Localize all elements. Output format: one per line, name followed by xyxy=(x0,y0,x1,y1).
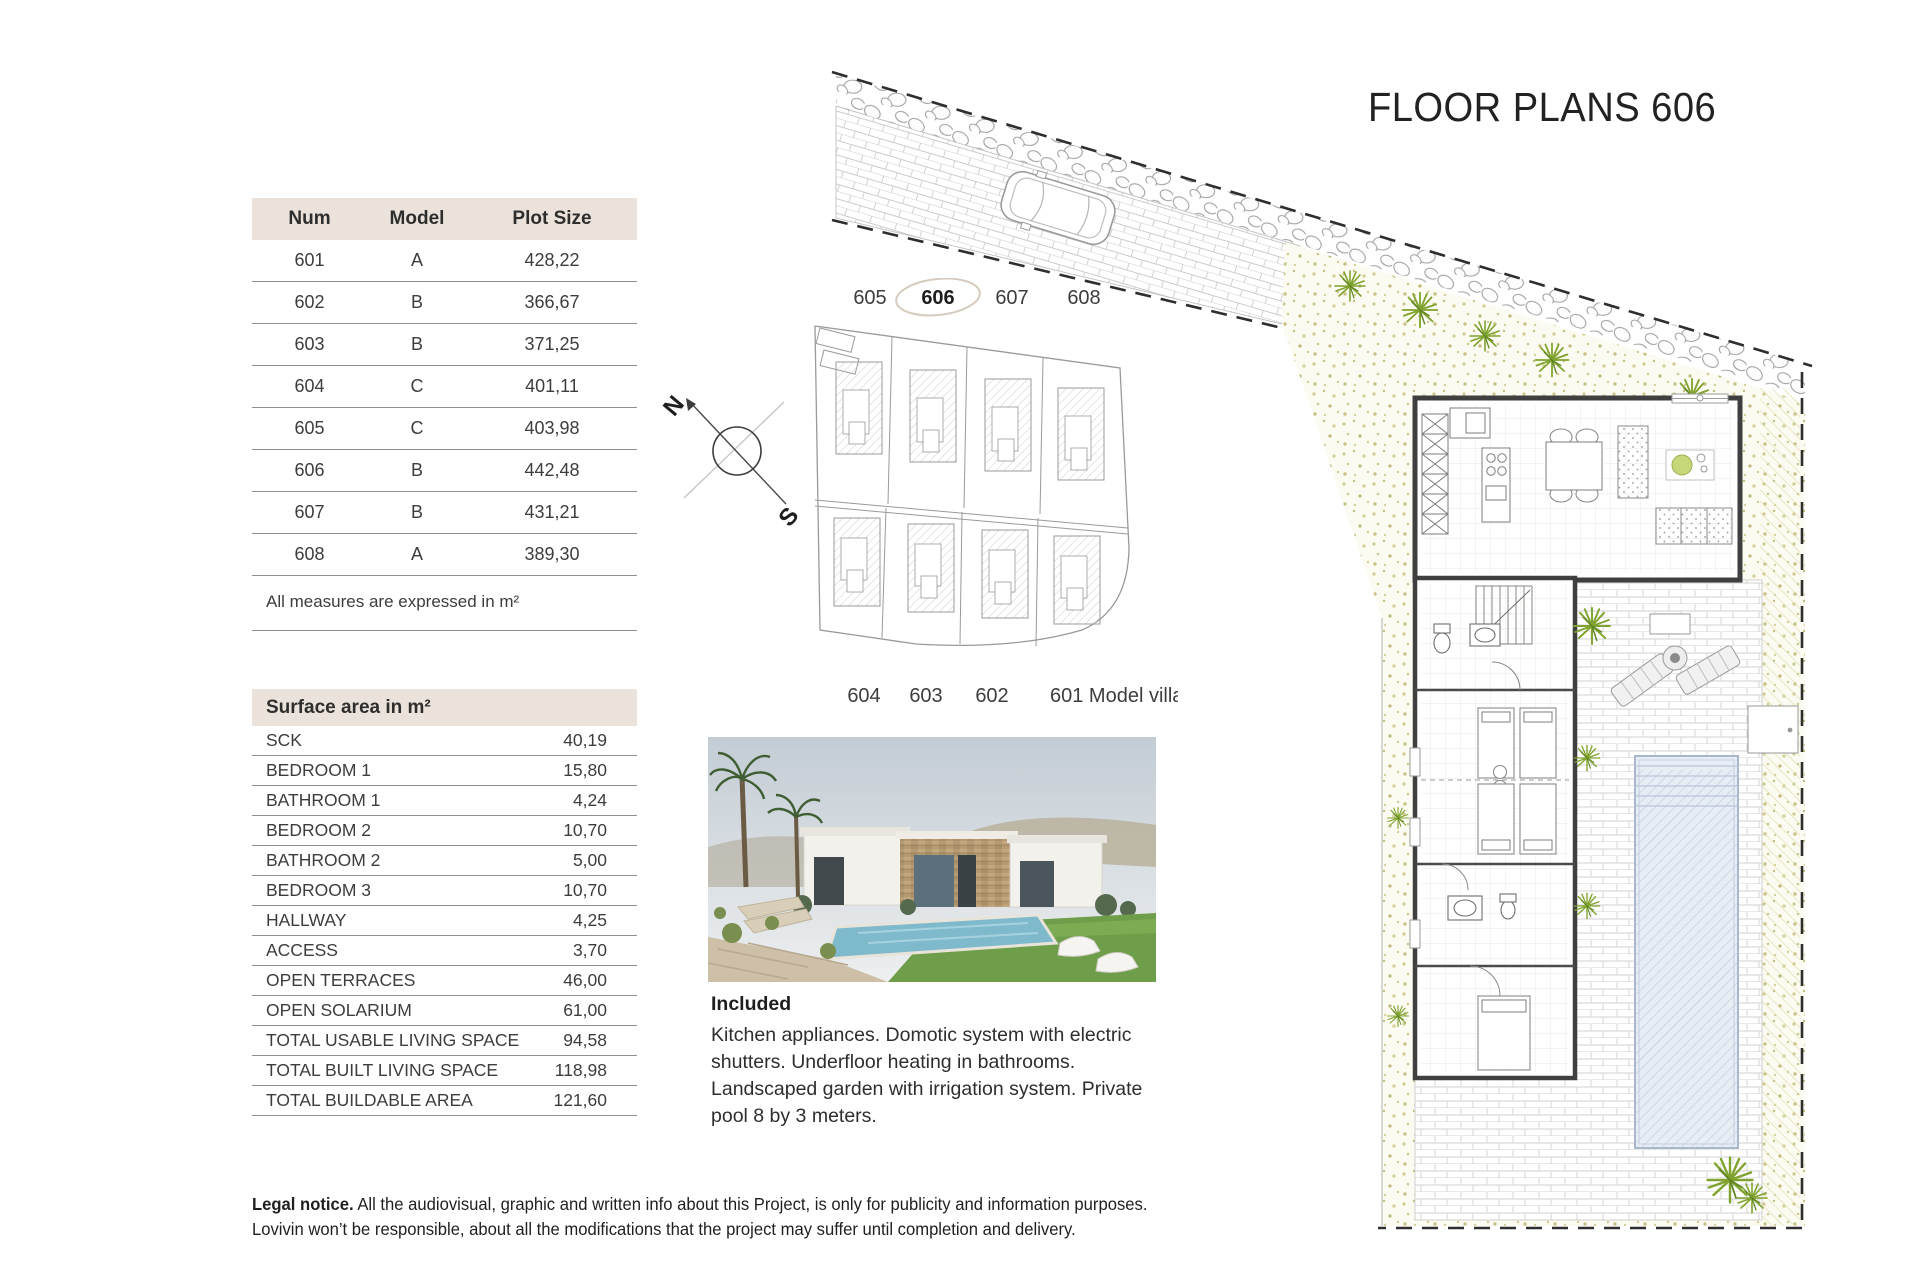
sofa xyxy=(1656,508,1732,544)
legal-notice-heading: Legal notice. xyxy=(252,1194,354,1214)
col-num: Num xyxy=(252,208,367,230)
table-row: BEDROOM 115,80 xyxy=(252,756,637,786)
table-row: 603B371,25 xyxy=(252,324,637,366)
side-path xyxy=(1760,388,1800,1226)
table-row: TOTAL USABLE LIVING SPACE94,58 xyxy=(252,1026,637,1056)
surface-table-title: Surface area in m² xyxy=(252,689,637,726)
plots-table: Num Model Plot Size 601A428,22 602B366,6… xyxy=(252,198,637,631)
table-row: TOTAL BUILT LIVING SPACE118,98 xyxy=(252,1056,637,1086)
main-floor-plan xyxy=(830,58,1815,1273)
table-row: OPEN TERRACES46,00 xyxy=(252,966,637,996)
table-row: HALLWAY4,25 xyxy=(252,906,637,936)
access-room xyxy=(1478,996,1530,1070)
table-row: ACCESS3,70 xyxy=(252,936,637,966)
plots-table-header: Num Model Plot Size xyxy=(252,198,637,240)
col-model: Model xyxy=(367,208,467,230)
compass-rose: N S xyxy=(660,378,820,538)
table-row: SCK40,19 xyxy=(252,726,637,756)
table-row: TOTAL BUILDABLE AREA121,60 xyxy=(252,1086,637,1116)
table-row: 607B431,21 xyxy=(252,492,637,534)
table-row: BATHROOM 14,24 xyxy=(252,786,637,816)
table-row: BEDROOM 210,70 xyxy=(252,816,637,846)
bench xyxy=(1650,614,1690,634)
table-row: 606B442,48 xyxy=(252,450,637,492)
table-row: 608A389,30 xyxy=(252,534,637,576)
floor-plan-page: Num Model Plot Size 601A428,22 602B366,6… xyxy=(0,0,1920,1280)
surface-area-table: Surface area in m² SCK40,19 BEDROOM 115,… xyxy=(252,689,637,1116)
living-kitchen-block xyxy=(1415,394,1740,580)
compass-north-label: N xyxy=(660,391,690,422)
table-row: BATHROOM 25,00 xyxy=(252,846,637,876)
compass-axis-line xyxy=(690,402,786,504)
col-plot-size: Plot Size xyxy=(467,208,637,230)
bedroom-wing xyxy=(1410,578,1575,1078)
kitchen-counter xyxy=(1482,448,1510,522)
table-row: 601A428,22 xyxy=(252,240,637,282)
decor-rug xyxy=(1666,450,1714,480)
window xyxy=(1672,394,1728,403)
garden-plant xyxy=(1335,271,1365,301)
measures-note: All measures are expressed in m² xyxy=(252,576,637,631)
table-row: 604C401,11 xyxy=(252,366,637,408)
pool xyxy=(1635,756,1738,1148)
table-row: OPEN SOLARIUM61,00 xyxy=(252,996,637,1026)
terrace-tree xyxy=(1574,608,1610,644)
bathroom-2 xyxy=(1448,894,1516,920)
table-row: BEDROOM 310,70 xyxy=(252,876,637,906)
cabinet xyxy=(1618,426,1648,498)
compass-cross-line xyxy=(684,402,784,498)
table-row: 602B366,67 xyxy=(252,282,637,324)
table-row: 605C403,98 xyxy=(252,408,637,450)
